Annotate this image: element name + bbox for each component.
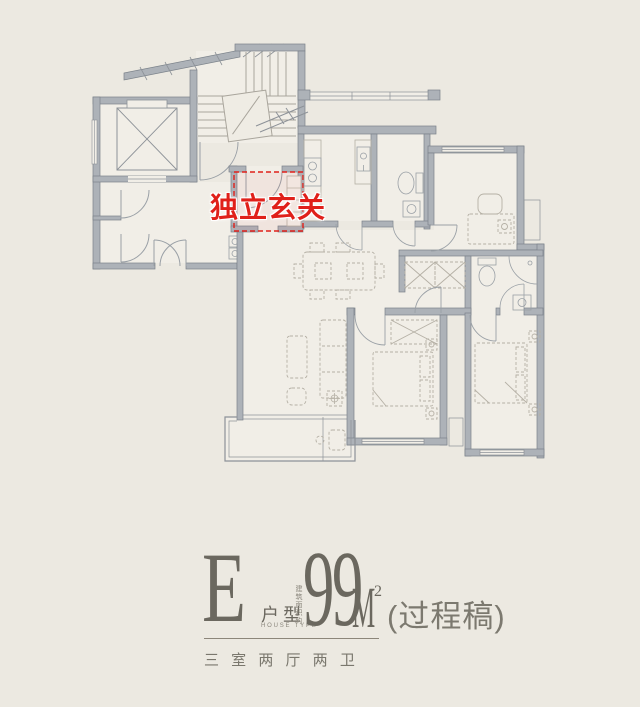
rooms-summary: 三 室 两 厅 两 卫 <box>204 649 359 670</box>
area-note: 建筑面积约 <box>293 585 303 631</box>
draft-note: (过程稿) <box>387 600 506 634</box>
area-unit: M <box>352 579 375 637</box>
foyer-callout-label: 独立玄关 <box>210 186 326 226</box>
title-divider <box>204 638 379 639</box>
floor-plan-page: 独立玄关 E 户型 HOUSE TYPE 建筑面积约 99 M 2 (过程稿) … <box>0 0 640 707</box>
area-exponent: 2 <box>374 584 382 600</box>
unit-type-letter: E <box>202 538 246 638</box>
